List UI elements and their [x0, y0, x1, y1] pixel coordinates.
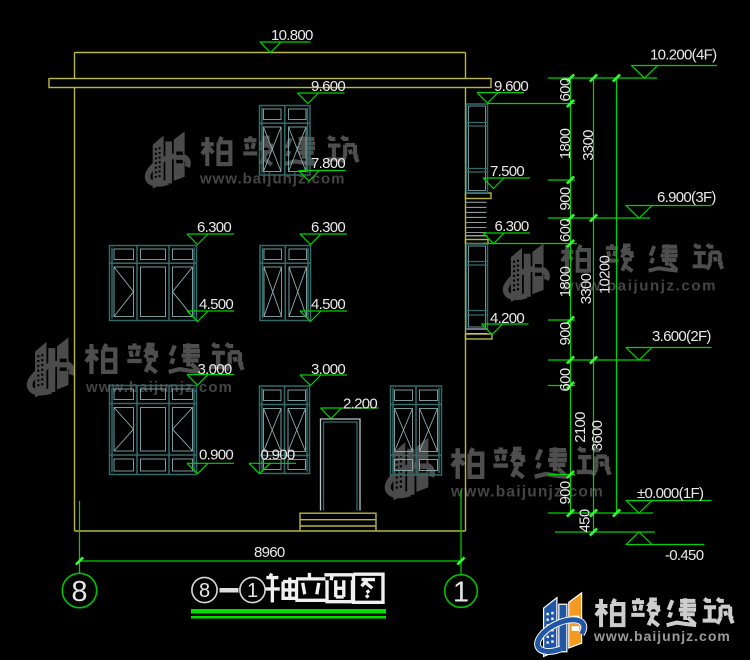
svg-text:450: 450 — [577, 509, 594, 532]
svg-text:3.600(2F): 3.600(2F) — [652, 328, 711, 345]
svg-text:600: 600 — [557, 368, 574, 391]
svg-text:4.200: 4.200 — [490, 310, 524, 327]
svg-text:2.200: 2.200 — [343, 396, 377, 413]
svg-text:600: 600 — [557, 219, 574, 242]
svg-text:10.800: 10.800 — [271, 27, 313, 44]
svg-text:900: 900 — [557, 187, 574, 210]
svg-text:7.800: 7.800 — [311, 155, 345, 172]
svg-text:4.500: 4.500 — [311, 296, 345, 313]
svg-text:0.900: 0.900 — [261, 447, 295, 464]
svg-text:www.baijunjz.com: www.baijunjz.com — [85, 379, 233, 396]
svg-text:8: 8 — [199, 580, 210, 602]
svg-text:9.600: 9.600 — [494, 78, 528, 95]
svg-text:3600: 3600 — [589, 420, 606, 451]
svg-text:0.900: 0.900 — [199, 447, 233, 464]
svg-text:600: 600 — [557, 78, 574, 101]
svg-text:3.000: 3.000 — [311, 361, 345, 378]
svg-text:8960: 8960 — [254, 544, 285, 561]
svg-text:www.baijunjz.com: www.baijunjz.com — [450, 484, 604, 501]
svg-text:1: 1 — [247, 580, 258, 602]
svg-text:6.900(3F): 6.900(3F) — [657, 189, 716, 206]
svg-text:6.300: 6.300 — [311, 219, 345, 236]
svg-text:1800: 1800 — [557, 266, 574, 297]
svg-text:900: 900 — [557, 481, 574, 504]
svg-text:8: 8 — [71, 576, 87, 608]
svg-text:10.200(4F): 10.200(4F) — [650, 47, 717, 64]
svg-text:10200: 10200 — [597, 256, 614, 295]
svg-text:1: 1 — [453, 577, 469, 609]
svg-text:900: 900 — [557, 322, 574, 345]
svg-text:6.300: 6.300 — [197, 219, 231, 236]
svg-text:3300: 3300 — [578, 273, 595, 304]
svg-text:4.500: 4.500 — [199, 296, 233, 313]
svg-text:www.baijunjz.com: www.baijunjz.com — [199, 171, 345, 188]
svg-text:6.300: 6.300 — [495, 218, 529, 235]
svg-text:7.500: 7.500 — [490, 163, 524, 180]
svg-text:3.000: 3.000 — [198, 361, 232, 378]
svg-text:±0.000(1F): ±0.000(1F) — [637, 485, 704, 502]
svg-text:-0.450: -0.450 — [665, 547, 704, 564]
svg-text:9.600: 9.600 — [311, 78, 345, 95]
svg-text:3300: 3300 — [580, 130, 597, 161]
svg-text:1800: 1800 — [557, 128, 574, 159]
svg-text:2100: 2100 — [572, 412, 589, 443]
svg-text:www.baijunjz.com: www.baijunjz.com — [593, 628, 731, 644]
